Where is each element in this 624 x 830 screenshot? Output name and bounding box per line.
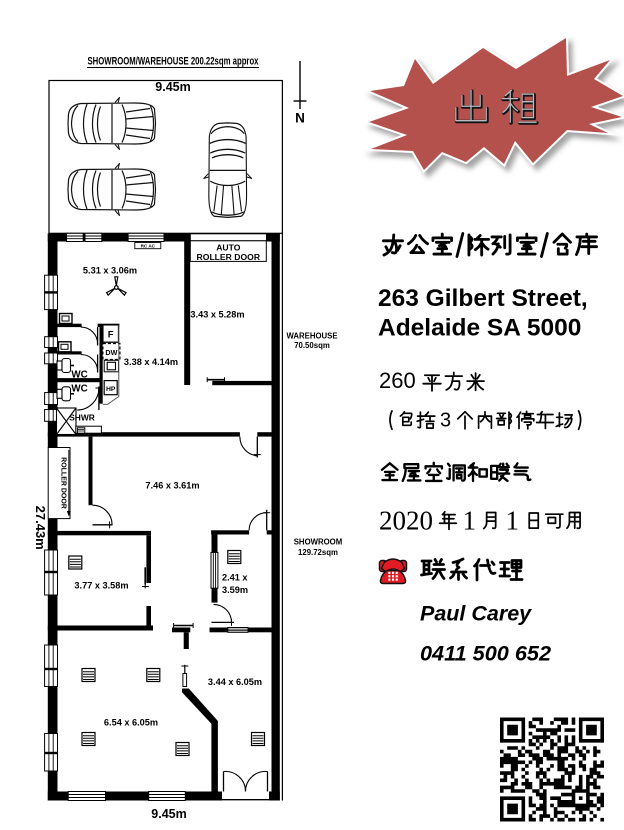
svg-text:27.43m: 27.43m	[33, 506, 48, 550]
svg-text:2.41 x: 2.41 x	[222, 573, 248, 583]
svg-text:HP: HP	[106, 386, 116, 393]
svg-text:RC AC: RC AC	[141, 243, 156, 248]
svg-text:Paul Carey: Paul Carey	[420, 602, 532, 626]
svg-text:9.45m: 9.45m	[151, 807, 186, 821]
svg-text:WAREHOUSE: WAREHOUSE	[286, 332, 337, 341]
svg-text:Adelaide SA 5000: Adelaide SA 5000	[378, 315, 581, 342]
svg-text:70.50sqm: 70.50sqm	[294, 341, 330, 350]
svg-text:6.54 x 6.05m: 6.54 x 6.05m	[104, 718, 158, 728]
svg-text:N: N	[295, 111, 305, 126]
svg-text:3: 3	[440, 410, 451, 432]
svg-text:2020: 2020	[379, 506, 433, 536]
svg-text:3.38 x 4.14m: 3.38 x 4.14m	[124, 357, 178, 367]
svg-text:SHWR: SHWR	[69, 413, 95, 423]
svg-text:ROLLER DOOR: ROLLER DOOR	[60, 457, 67, 509]
svg-text:WC: WC	[71, 369, 87, 380]
svg-text:SHOWROOM: SHOWROOM	[294, 538, 343, 547]
svg-text:3.44 x 6.05m: 3.44 x 6.05m	[208, 677, 262, 687]
svg-text:5.31 x 3.06m: 5.31 x 3.06m	[83, 266, 137, 276]
svg-text:ROLLER DOOR: ROLLER DOOR	[197, 252, 261, 262]
svg-text:3.59m: 3.59m	[222, 585, 248, 595]
svg-text:260: 260	[379, 368, 416, 393]
svg-text:DW: DW	[105, 348, 117, 357]
svg-text:SHOWROOM/WAREHOUSE 200.22sqm a: SHOWROOM/WAREHOUSE 200.22sqm approx	[88, 56, 260, 68]
svg-text:9.45m: 9.45m	[155, 80, 190, 94]
svg-text:3.77 x 3.58m: 3.77 x 3.58m	[74, 581, 128, 591]
svg-text:263 Gilbert Street,: 263 Gilbert Street,	[378, 285, 588, 312]
svg-text:1: 1	[506, 506, 520, 536]
svg-text:7.46 x 3.61m: 7.46 x 3.61m	[145, 481, 199, 491]
svg-text:1: 1	[463, 506, 477, 536]
svg-text:3.43 x 5.28m: 3.43 x 5.28m	[190, 310, 244, 320]
svg-text:F: F	[108, 330, 114, 341]
svg-text:129.72sqm: 129.72sqm	[298, 548, 338, 557]
svg-text:0411 500 652: 0411 500 652	[420, 641, 551, 666]
svg-text:WC: WC	[71, 383, 87, 394]
